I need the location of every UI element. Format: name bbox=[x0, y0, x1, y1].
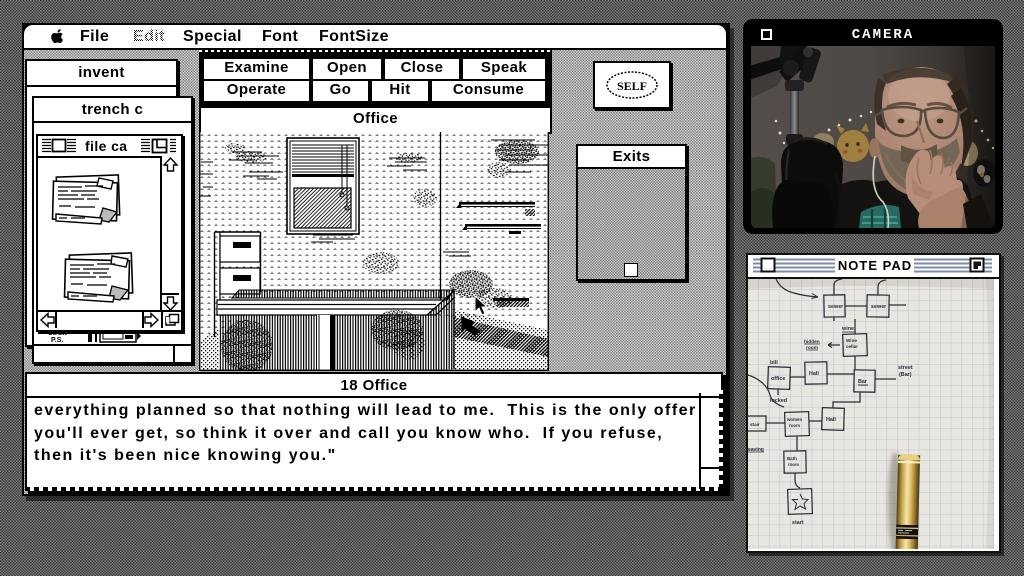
svg-text:Wine: Wine bbox=[846, 338, 857, 343]
svg-text:room: room bbox=[789, 423, 800, 428]
svg-text:office: office bbox=[771, 376, 785, 382]
svg-text:locked: locked bbox=[770, 398, 787, 404]
svg-text:women: women bbox=[786, 417, 802, 422]
svg-text:start: start bbox=[792, 520, 804, 526]
svg-text:sewer: sewer bbox=[828, 304, 844, 310]
svg-text:SELF: SELF bbox=[617, 79, 647, 93]
svg-text:sewer: sewer bbox=[871, 304, 887, 310]
svg-text:file ca: file ca bbox=[85, 138, 128, 154]
svg-text:Bar: Bar bbox=[858, 379, 868, 385]
svg-text:wine: wine bbox=[841, 326, 854, 332]
svg-text:street: street bbox=[898, 365, 913, 371]
svg-text:Bath: Bath bbox=[787, 456, 797, 461]
svg-text:Hall: Hall bbox=[826, 417, 836, 423]
svg-text:cellar: cellar bbox=[846, 344, 858, 349]
svg-text:bill: bill bbox=[770, 360, 778, 366]
svg-text:Hall: Hall bbox=[809, 371, 819, 377]
svg-text:P.S.: P.S. bbox=[51, 337, 63, 343]
svg-text:(Bar): (Bar) bbox=[899, 372, 912, 378]
svg-text:room: room bbox=[788, 462, 799, 467]
svg-text:stair: stair bbox=[750, 422, 760, 427]
svg-text:NOTE PAD: NOTE PAD bbox=[838, 258, 912, 273]
